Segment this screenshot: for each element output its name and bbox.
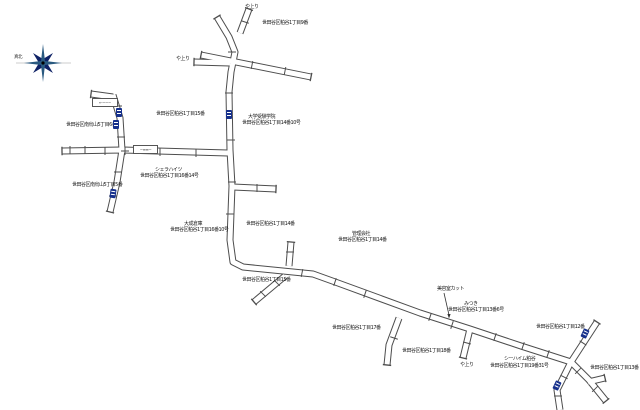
block-label-15-upper: 世田谷区粕谷1丁目15番 bbox=[156, 112, 205, 117]
block-label-west-6: 世田谷区南烏山5丁目6番 bbox=[66, 123, 116, 128]
block-label-12: 世田谷区粕谷1丁目12番 bbox=[536, 325, 585, 330]
address-label-14-10: 世田谷区粕谷1丁目14番10号 bbox=[242, 121, 300, 126]
address-label-16-14: 世田谷区粕谷1丁目16番14号 bbox=[140, 174, 198, 179]
address-plate-marker bbox=[109, 189, 116, 199]
address-label-19-31: 世田谷区粕谷1丁目19番31号 bbox=[490, 364, 548, 369]
residential-guide-map: や上り世田谷区粕谷1丁目9番や上り世田谷区粕谷1丁目15番大学受験学院世田谷区粕… bbox=[0, 0, 640, 410]
road-network-svg bbox=[0, 0, 640, 410]
signboard-west-upper: ←−−− bbox=[92, 98, 118, 107]
block-label-15-lower: 世田谷区粕谷1丁目15番 bbox=[242, 278, 291, 283]
block-label-14-right: 世田谷区粕谷1丁目14番 bbox=[338, 238, 387, 243]
address-plate-marker bbox=[116, 108, 122, 117]
address-label-13-6: 世田谷区粕谷1丁目13番6号 bbox=[448, 308, 504, 313]
block-label-9: 世田谷区粕谷1丁目9番 bbox=[262, 21, 308, 26]
poi-label-salon: 美容室カット bbox=[437, 287, 464, 292]
block-label-13: 世田谷区粕谷1丁目13番 bbox=[590, 366, 639, 371]
address-plate-marker bbox=[113, 120, 119, 129]
block-label-14-left: 世田谷区粕谷1丁目14番 bbox=[246, 222, 295, 227]
address-label-16-10: 世田谷区粕谷1丁目16番10号 bbox=[170, 228, 228, 233]
slope-label-top: や上り bbox=[245, 5, 259, 10]
address-plate-marker bbox=[226, 110, 232, 119]
slope-label-west: や上り bbox=[176, 57, 190, 62]
block-label-west-5: 世田谷区南烏山5丁目5番 bbox=[72, 183, 122, 188]
block-label-17: 世田谷区粕谷1丁目17番 bbox=[332, 326, 381, 331]
compass-north-label: 真北 bbox=[14, 54, 22, 60]
poi-label-seaheim: シーハイム粕谷 bbox=[504, 357, 535, 362]
signboard-crossroads: −≡≡− bbox=[133, 145, 158, 154]
block-label-18: 世田谷区粕谷1丁目18番 bbox=[402, 349, 451, 354]
slope-label-southeast: や上り bbox=[460, 363, 474, 368]
compass-rose-icon bbox=[16, 44, 71, 82]
